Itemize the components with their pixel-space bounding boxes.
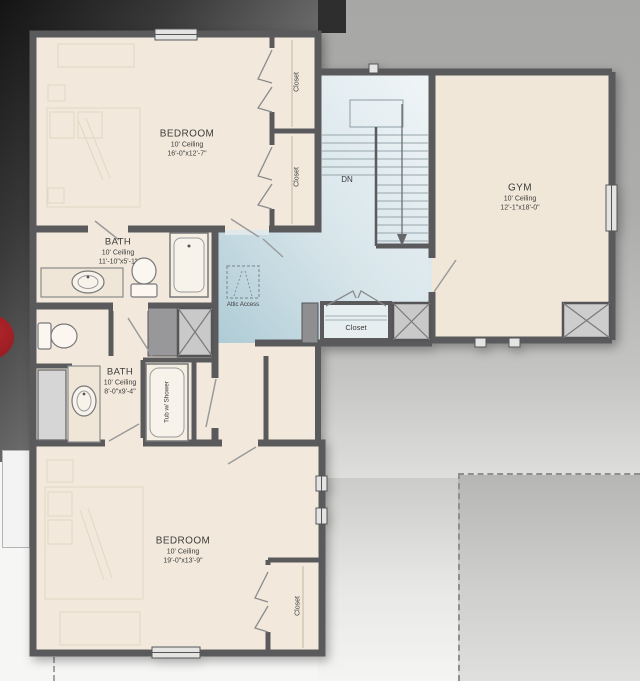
room-dims: 16'-0"x12'-7" xyxy=(160,150,214,159)
room-label-gym: GYM 10' Ceiling 12'-1"x18'-0" xyxy=(500,181,539,212)
room-label-bedroom-top: BEDROOM 10' Ceiling 16'-0"x12'-7" xyxy=(160,127,214,158)
closet-label-1: Closet xyxy=(294,72,301,92)
wall-mass-bath xyxy=(148,308,178,356)
linen-closet xyxy=(38,370,66,440)
room-ceiling: 10' Ceiling xyxy=(156,547,210,556)
room-label-bath-top: BATH 10' Ceiling 11'-10"x5'-1" xyxy=(99,237,138,268)
room-ceiling: 10' Ceiling xyxy=(160,140,214,149)
wall-mass-hall xyxy=(302,303,318,343)
room-ceiling: 10' Ceiling xyxy=(500,194,539,203)
sink-top-icon xyxy=(72,271,104,293)
shaft-bath xyxy=(178,308,212,356)
closet-label-2: Closet xyxy=(294,167,301,187)
room-name: BEDROOM xyxy=(160,127,214,140)
tub-shower-label: Tub w/ Shower xyxy=(164,381,171,423)
room-label-bedroom-bottom: BEDROOM 10' Ceiling 19'-0"x13'-9" xyxy=(156,534,210,565)
toilet-tank-top xyxy=(131,284,157,297)
toilet-tank-bottom xyxy=(38,323,51,349)
room-name: GYM xyxy=(500,181,539,194)
shaft-hall xyxy=(393,303,430,340)
floor-plan-svg xyxy=(0,0,640,681)
room-dims: 8'-0"x9'-4" xyxy=(104,388,136,397)
room-name: BEDROOM xyxy=(156,534,210,547)
shaft-gym xyxy=(563,303,610,338)
closet-label-3: Closet xyxy=(295,596,302,616)
toilet-icon-bottom xyxy=(51,324,77,348)
floor-plan-page: BEDROOM 10' Ceiling 16'-0"x12'-7" GYM 10… xyxy=(0,0,640,681)
room-label-bath-bottom: BATH 10' Ceiling 8'-0"x9'-4" xyxy=(104,367,136,398)
room-dims: 12'-1"x18'-0" xyxy=(500,204,539,213)
room-dims: 19'-0"x13'-9" xyxy=(156,557,210,566)
room-ceiling: 10' Ceiling xyxy=(104,379,136,388)
stairs-dn-label: DN xyxy=(341,175,353,185)
room-ceiling: 10' Ceiling xyxy=(99,249,138,258)
hall-closet-floor xyxy=(322,303,390,340)
room-name: BATH xyxy=(99,237,138,249)
attic-access-label: Attic Access xyxy=(227,302,259,310)
room-name: BATH xyxy=(104,367,136,379)
closet-label-hall: Closet xyxy=(345,323,366,333)
room-dims: 11'-10"x5'-1" xyxy=(99,258,138,267)
